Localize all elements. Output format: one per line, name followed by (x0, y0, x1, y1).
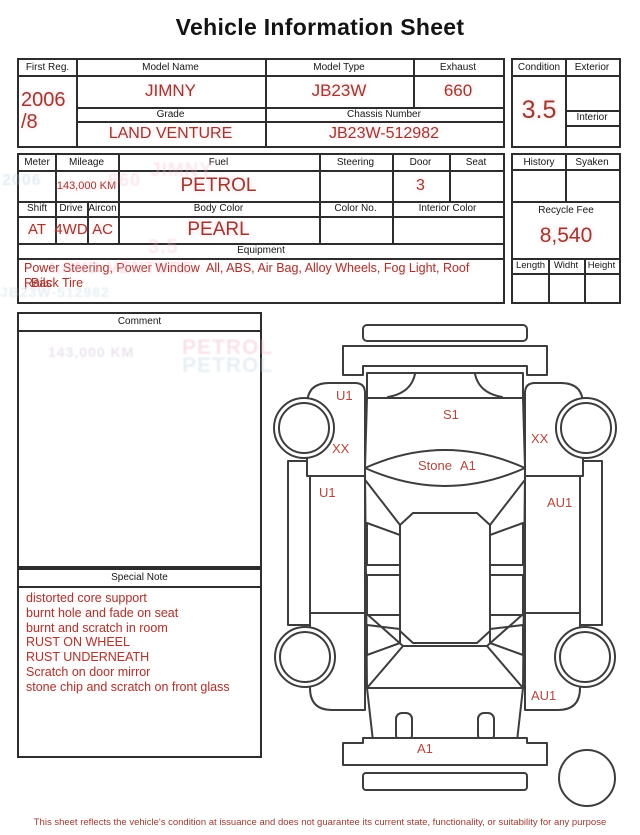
rear-panel (367, 688, 523, 741)
condition-box: Condition Exterior Interior 3.5 (511, 58, 621, 148)
fuel-label: Fuel (118, 155, 319, 170)
damage-code-label: A1 (460, 458, 476, 473)
drive-label: Drive (55, 201, 87, 216)
steering-value (319, 170, 392, 201)
interior-color-value (392, 216, 503, 243)
rear-bumper (343, 738, 547, 765)
steering-label: Steering (319, 155, 392, 170)
special-note-line: RUST ON WHEEL (26, 635, 256, 650)
syaken-label: Syaken (565, 155, 619, 169)
damage-code-label: XX (332, 441, 350, 456)
exterior-label: Exterior (565, 60, 619, 75)
condition-label: Condition (513, 60, 565, 75)
damage-code-label: XX (531, 431, 549, 446)
special-note-line: burnt hole and fade on seat (26, 606, 256, 621)
damage-code-label: A1 (417, 741, 433, 756)
special-note-label: Special Note (19, 570, 260, 585)
front-grille-bar (363, 325, 527, 341)
tail-light-right (478, 713, 494, 741)
color-no-value (319, 216, 392, 243)
chassis-number-label: Chassis Number (265, 107, 503, 121)
exterior-grade (565, 75, 619, 110)
front-fascia (367, 373, 523, 398)
drive-value: 4WD (55, 216, 87, 243)
vehicle-information-sheet: Vehicle Information Sheet First Reg. Mod… (0, 0, 640, 835)
meter-value (19, 170, 55, 201)
condition-score: 3.5 (513, 75, 565, 146)
model-type-label: Model Type (265, 60, 413, 75)
spec-table: Meter Mileage Fuel Steering Door Seat 14… (17, 153, 505, 304)
interior-label: Interior (565, 110, 619, 125)
special-note-box: Special Note distorted core support burn… (17, 568, 262, 758)
length-value (513, 273, 548, 302)
first-reg-value: 2006 /8 (21, 75, 76, 146)
history-label: History (513, 155, 565, 169)
registration-table: First Reg. Model Name Model Type Exhaust… (17, 58, 505, 148)
grade-label: Grade (76, 107, 265, 121)
special-note-line: stone chip and scratch on front glass (26, 680, 256, 695)
exhaust-label: Exhaust (413, 60, 503, 75)
side-glass-right (490, 523, 523, 565)
c-pillar-left (368, 615, 403, 646)
interior-color-label: Interior Color (392, 201, 503, 216)
seat-label: Seat (449, 155, 503, 170)
comment-label: Comment (19, 314, 260, 329)
length-label: Length (513, 258, 548, 273)
shift-value: AT (19, 216, 55, 243)
a-pillar-left (366, 481, 400, 525)
equipment-label: Equipment (19, 243, 503, 258)
rear-window (367, 646, 523, 688)
fuel-value: PETROL (118, 170, 319, 201)
damage-code-label: U1 (319, 485, 336, 500)
spare-tire (559, 750, 615, 806)
door-value: 3 (392, 170, 449, 201)
body-color-label: Body Color (118, 201, 319, 216)
divider (19, 586, 260, 588)
comment-box: Comment (17, 312, 262, 568)
recycle-fee-value: 8,540 (513, 215, 619, 257)
model-type-value: JB23W (265, 75, 413, 107)
special-note-line: burnt and scratch in room (26, 621, 256, 636)
height-value (584, 273, 619, 302)
meter-label: Meter (19, 155, 55, 170)
special-note-line: Scratch on door mirror (26, 665, 256, 680)
aircon-value: AC (87, 216, 118, 243)
special-note-list: distorted core support burnt hole and fa… (26, 591, 256, 695)
rocker-panel-right (580, 461, 602, 625)
side-glass-left (367, 523, 400, 565)
front-bumper (343, 346, 547, 375)
divider (19, 258, 503, 260)
height-label: Height (584, 258, 619, 273)
page-title: Vehicle Information Sheet (0, 14, 640, 41)
mileage-value: 143,000 KM (55, 170, 118, 201)
car-outline (274, 325, 616, 806)
grade-value: LAND VENTURE (76, 121, 265, 146)
roof (400, 513, 490, 643)
c-pillar-right (487, 615, 522, 646)
damage-code-label: Stone (418, 458, 452, 473)
damage-code-label: S1 (443, 407, 459, 422)
mileage-label: Mileage (55, 155, 118, 170)
width-label: Widht (548, 258, 584, 273)
equipment-list-line2: , Back Tire (24, 276, 498, 291)
model-name-value: JIMNY (76, 75, 265, 107)
car-diagram: U1S1XXXXStoneA1U1AU1AU1A1 (270, 313, 640, 815)
a-pillar-right (490, 481, 524, 525)
interior-grade (565, 125, 619, 146)
disclaimer-text: This sheet reflects the vehicle's condit… (0, 817, 640, 828)
body-color-value: PEARL (118, 216, 319, 243)
headlight-right (475, 374, 502, 397)
history-fee-box: History Syaken Recycle Fee 8,540 Length … (511, 153, 621, 304)
rocker-panel-left (288, 461, 310, 625)
exhaust-value: 660 (413, 75, 503, 107)
special-note-line: distorted core support (26, 591, 256, 606)
syaken-value (565, 169, 619, 201)
first-reg-month: /8 (21, 111, 38, 133)
damage-code-label: AU1 (531, 688, 556, 703)
aircon-label: Aircon (87, 201, 118, 216)
rear-lower-bar (363, 773, 527, 790)
headlight-left (388, 374, 415, 397)
first-reg-year: 2006 (21, 89, 66, 111)
chassis-number-value: JB23W-512982 (265, 121, 503, 146)
special-note-line: RUST UNDERNEATH (26, 650, 256, 665)
damage-code-label: U1 (336, 388, 353, 403)
width-value (548, 273, 584, 302)
tail-light-left (396, 713, 412, 741)
color-no-label: Color No. (319, 201, 392, 216)
door-label: Door (392, 155, 449, 170)
model-name-label: Model Name (76, 60, 265, 75)
first-reg-label: First Reg. (19, 60, 76, 75)
history-value (513, 169, 565, 201)
damage-code-label: AU1 (547, 495, 572, 510)
divider (19, 330, 260, 332)
shift-label: Shift (19, 201, 55, 216)
seat-value (449, 170, 503, 201)
